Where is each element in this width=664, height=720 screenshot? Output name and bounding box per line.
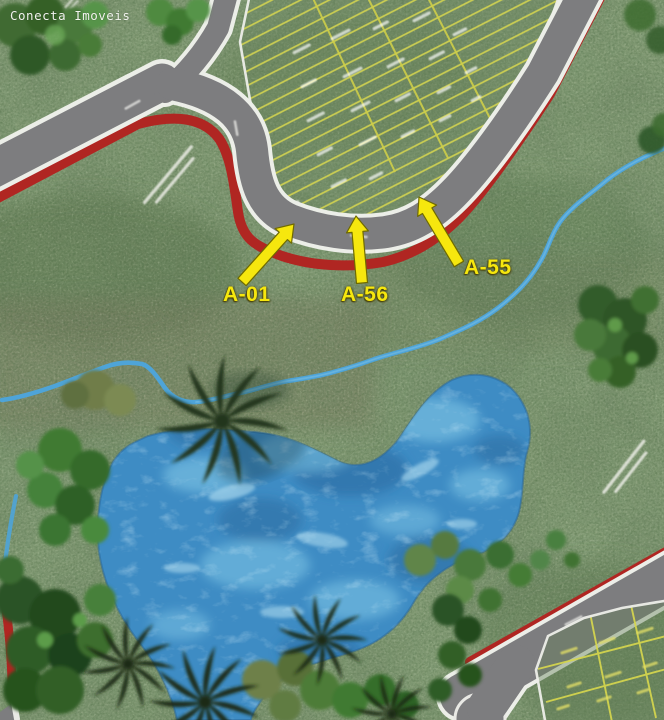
- watermark: Conecta Imoveis: [10, 8, 130, 23]
- lot-label-a-01: A-01: [223, 283, 271, 307]
- site-plan-map: [0, 0, 664, 720]
- listing-photo-site-plan: Conecta Imoveis A-01 A-56 A-55: [0, 0, 664, 720]
- lot-label-a-56: A-56: [341, 283, 389, 307]
- lot-label-a-55: A-55: [464, 256, 512, 280]
